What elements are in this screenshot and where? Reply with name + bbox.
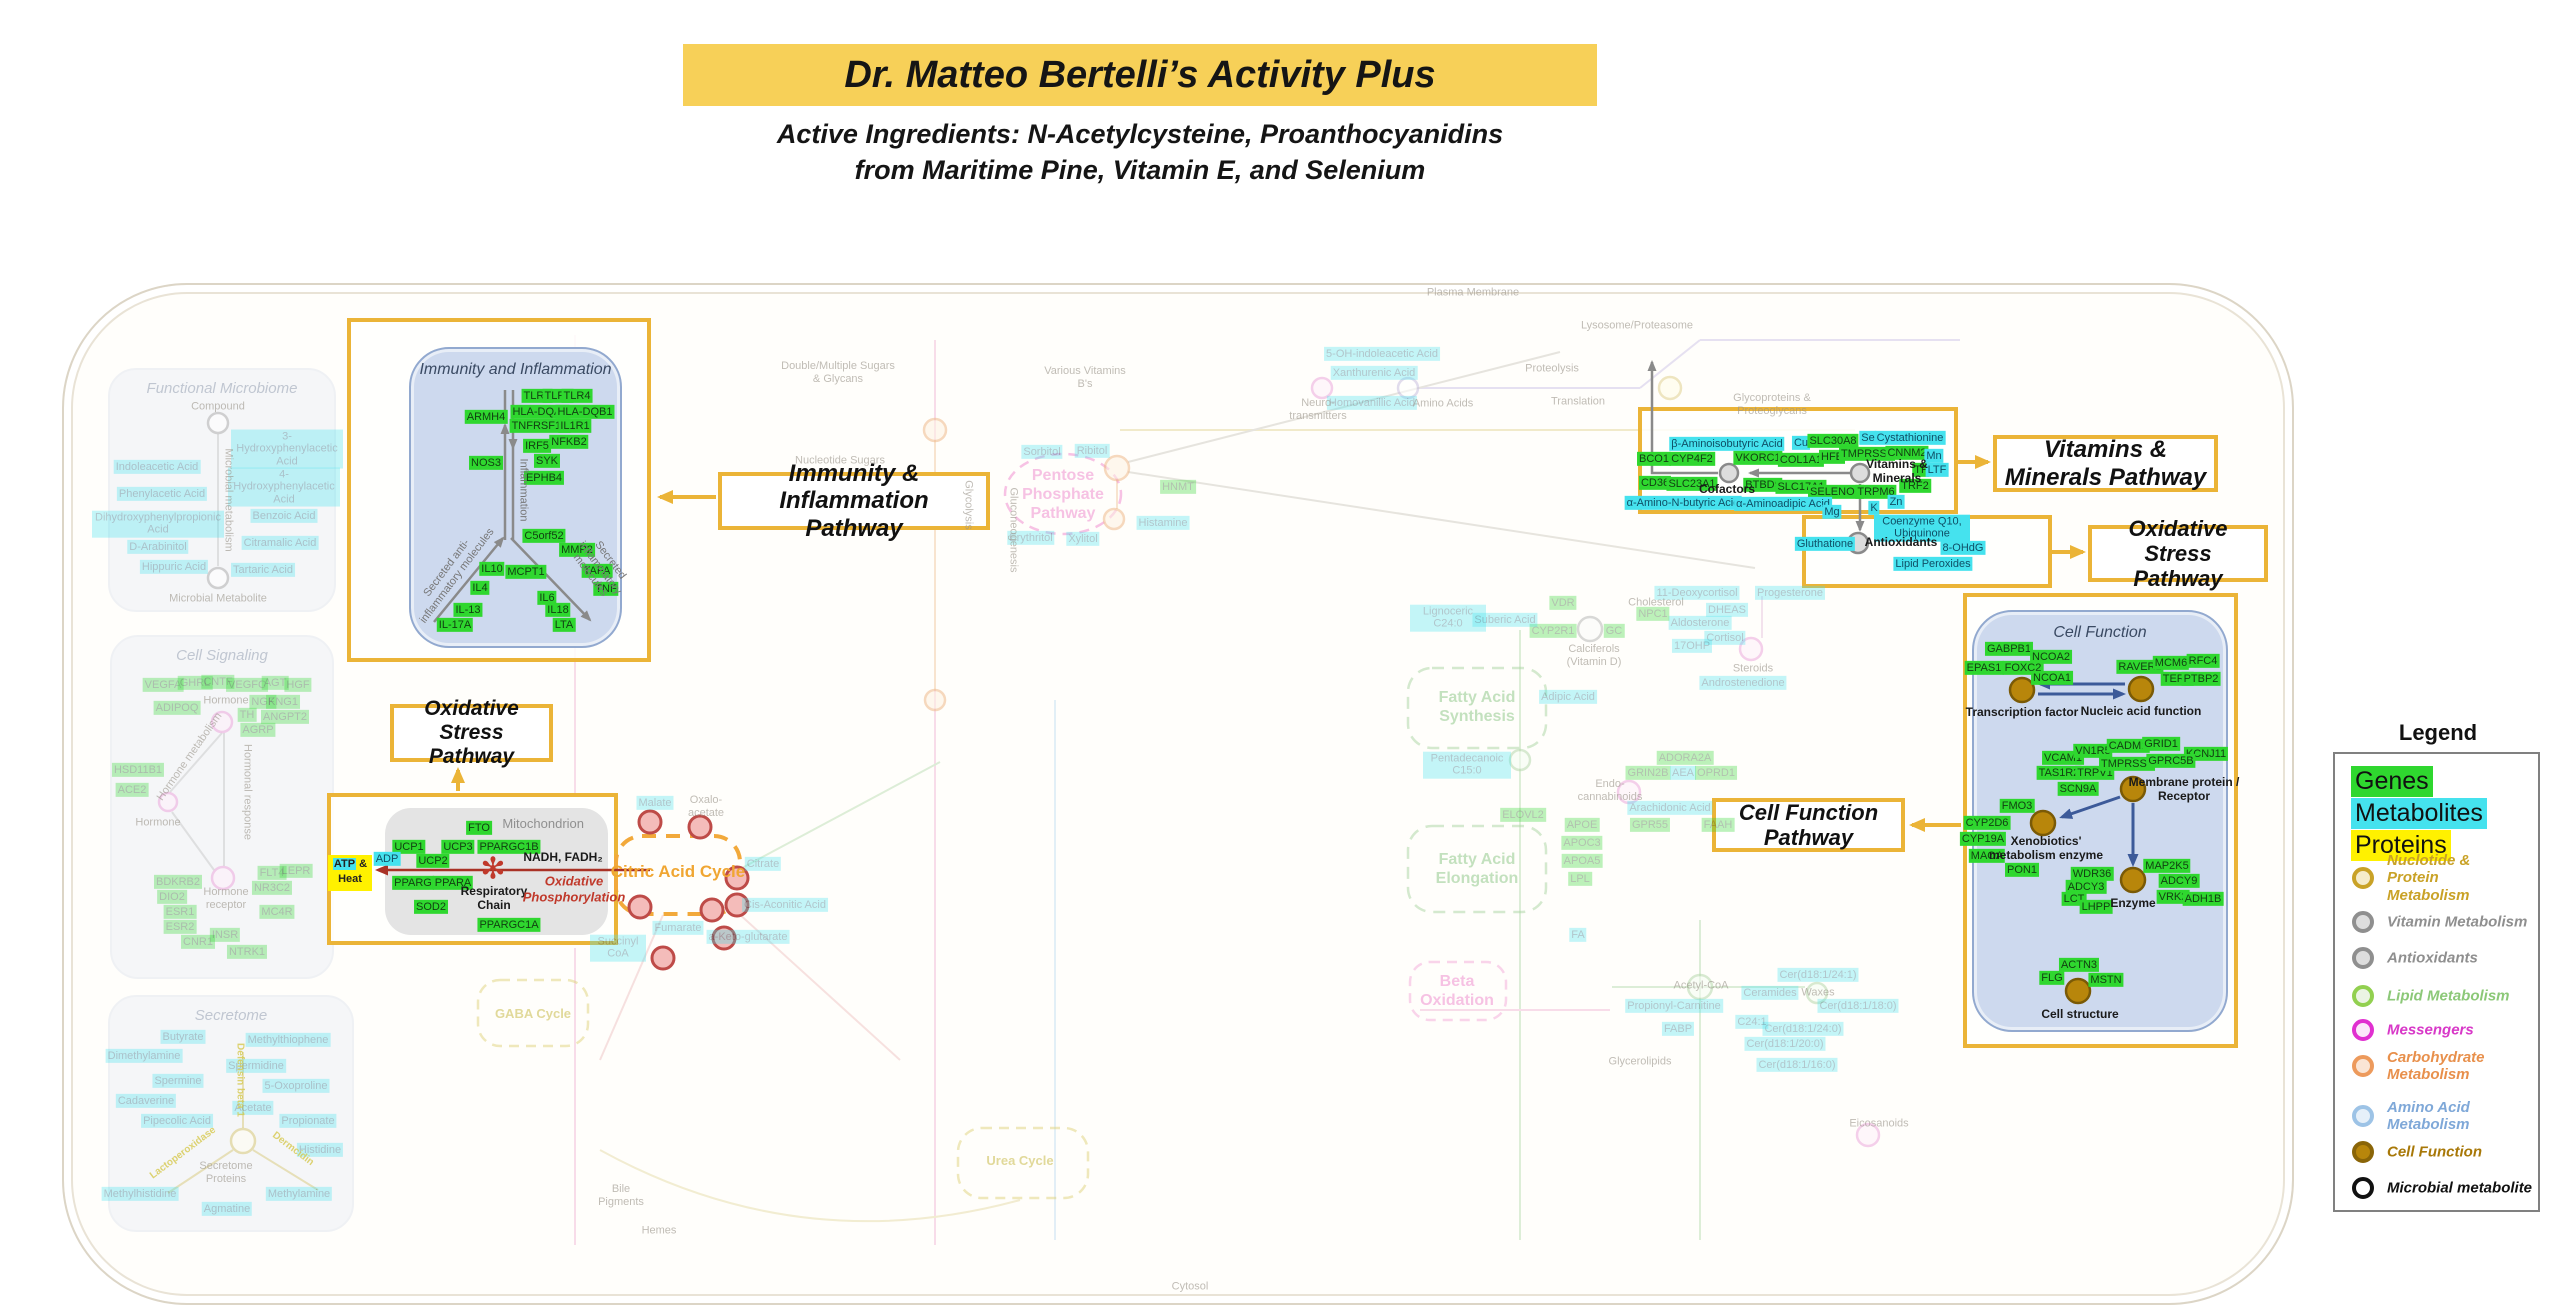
vitamins-pathway-text: Vitamins & Minerals Pathway bbox=[2003, 436, 2208, 491]
cell-function-pathway-text: Cell Function Pathway bbox=[1722, 800, 1895, 851]
mitochondrion-title: Mitochondrion bbox=[502, 816, 584, 831]
cell-signaling-panel: Cell Signaling bbox=[110, 635, 334, 979]
functional-microbiome-panel: Functional Microbiome bbox=[108, 368, 336, 612]
title-banner: Dr. Matteo Bertelli’s Activity Plus bbox=[683, 44, 1597, 106]
legend-circle-icon bbox=[2352, 947, 2374, 969]
secretome-panel: Secretome bbox=[108, 995, 354, 1232]
heat-label: Heat bbox=[328, 872, 372, 887]
legend-item-label: Vitamin Metabolism bbox=[2387, 913, 2527, 930]
immunity-pathway-label: Immunity & Inflammation Pathway bbox=[718, 472, 990, 530]
legend-circle-icon bbox=[2352, 1141, 2374, 1163]
legend-item-label: Antioxidants bbox=[2387, 949, 2478, 966]
immunity-inflammation-box: Immunity and Inflammation bbox=[409, 347, 622, 648]
oxidative-stress-pathway-label-right: Oxidative Stress Pathway bbox=[2088, 525, 2268, 582]
legend-circle-icon bbox=[2352, 867, 2374, 889]
legend-title: Legend bbox=[2333, 720, 2543, 746]
oxidative-stress-pathway-label-left: Oxidative Stress Pathway bbox=[390, 704, 553, 762]
legend-highlight: Genes bbox=[2351, 766, 2433, 797]
amp-label: & bbox=[359, 858, 367, 870]
cell-signaling-title: Cell Signaling bbox=[112, 647, 332, 664]
subtitle: Active Ingredients: N-Acetylcysteine, Pr… bbox=[640, 116, 1640, 189]
functional-microbiome-title: Functional Microbiome bbox=[110, 380, 334, 397]
secretome-title: Secretome bbox=[110, 1007, 352, 1024]
legend-circle-icon bbox=[2352, 911, 2374, 933]
immunity-pathway-text: Immunity & Inflammation Pathway bbox=[728, 460, 980, 543]
legend-item-label: Messengers bbox=[2387, 1021, 2474, 1038]
cell-function-pathway-label: Cell Function Pathway bbox=[1712, 798, 1905, 852]
vitamins-pathway-label: Vitamins & Minerals Pathway bbox=[1993, 435, 2218, 492]
legend-circle-icon bbox=[2352, 1019, 2374, 1041]
legend-item-label: Cell Function bbox=[2387, 1143, 2482, 1160]
oxidative-left-text: Oxidative Stress Pathway bbox=[400, 697, 543, 769]
mitochondrion-box: Mitochondrion bbox=[385, 808, 608, 935]
vitamins-minerals-frame bbox=[1638, 407, 1958, 514]
legend-circle-icon bbox=[2352, 1105, 2374, 1127]
legend-item-label: Carbohydrate Metabolism bbox=[2387, 1049, 2517, 1084]
legend-highlights: GenesMetabolitesProteins bbox=[2351, 766, 2487, 862]
oxidative-right-text: Oxidative Stress Pathway bbox=[2098, 516, 2258, 592]
atp-label: ATP bbox=[333, 858, 356, 870]
legend-item-label: Microbial metabolite bbox=[2387, 1179, 2532, 1196]
legend-item-label: Lipid Metabolism bbox=[2387, 987, 2517, 1004]
subtitle-line-1: Active Ingredients: N-Acetylcysteine, Pr… bbox=[640, 116, 1640, 152]
legend-circle-icon bbox=[2352, 1177, 2374, 1199]
immunity-box-title: Immunity and Inflammation bbox=[411, 361, 620, 379]
antioxidants-frame bbox=[1802, 515, 2052, 588]
atp-heat-label: ATP & Heat bbox=[328, 855, 372, 891]
legend-item-label: Amino Acid Metabolism bbox=[2387, 1099, 2517, 1134]
legend-circle-icon bbox=[2352, 1055, 2374, 1077]
cell-function-box-title: Cell Function bbox=[1974, 624, 2226, 642]
page-title: Dr. Matteo Bertelli’s Activity Plus bbox=[683, 44, 1597, 106]
legend-box: GenesMetabolitesProteins Nuclotide & Pro… bbox=[2333, 752, 2540, 1212]
legend-highlight: Metabolites bbox=[2351, 798, 2487, 829]
cell-function-box: Cell Function bbox=[1972, 610, 2228, 1032]
metabolic-map-canvas: Dr. Matteo Bertelli’s Activity Plus Acti… bbox=[0, 0, 2560, 1315]
subtitle-line-2: from Maritime Pine, Vitamin E, and Selen… bbox=[640, 152, 1640, 188]
legend-circle-icon bbox=[2352, 985, 2374, 1007]
legend-item-label: Nuclotide & Protein Metabolism bbox=[2387, 852, 2517, 904]
